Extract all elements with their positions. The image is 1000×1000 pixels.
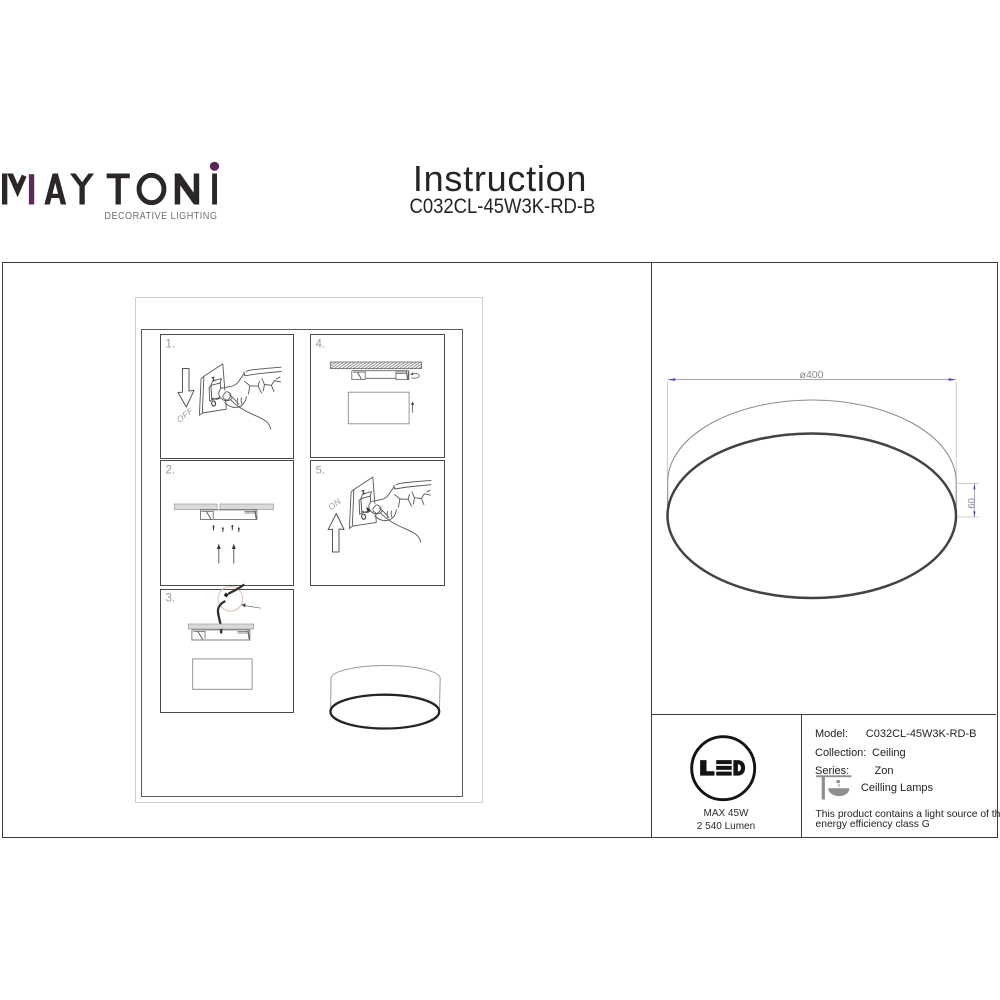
svg-text:OFF: OFF [174,405,195,424]
svg-text:ON: ON [326,496,343,512]
svg-text:2.: 2. [165,465,175,477]
svg-text:1.: 1. [165,338,175,350]
svg-text:5.: 5. [315,464,325,476]
svg-text:4.: 4. [315,338,325,350]
svg-text:ø400: ø400 [800,369,824,381]
svg-text:60: 60 [967,498,978,509]
svg-text:3.: 3. [166,593,176,605]
